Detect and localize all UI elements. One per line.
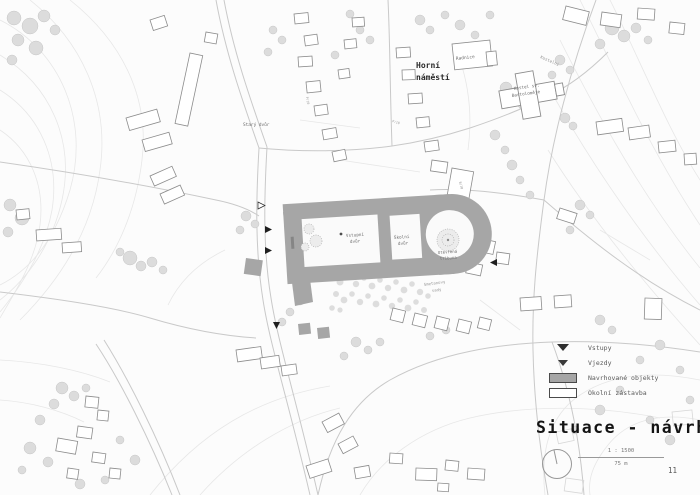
scale-length: 75 m: [578, 458, 664, 467]
existing-swatch-icon: [546, 388, 580, 398]
legend-label: Navrhované objekty: [588, 374, 658, 382]
tribune-tree-trunk: [447, 239, 449, 241]
scale-bar: 1 : 1500 75 m: [578, 448, 664, 467]
legend-item-navrhovane: Navrhované objekty: [546, 370, 696, 385]
square-label: Horní: [416, 61, 440, 70]
park-label: sady: [431, 287, 442, 293]
legend: Vstupy Vjezdy Navrhované objekty Okolní …: [546, 340, 696, 400]
utility-mark: P/10: [392, 119, 401, 125]
label-bullet: [340, 233, 343, 236]
drawing-title: Situace - návrh: [536, 418, 700, 437]
legend-item-vstupy: Vstupy: [546, 340, 696, 355]
north-compass: [543, 450, 572, 479]
legend-label: Vstupy: [588, 344, 611, 352]
old-yard-label: Starý dvůr: [243, 121, 270, 128]
proposed-pavilion: [317, 327, 330, 339]
proposed-building-complex: [244, 192, 494, 339]
proposed-small-building: [244, 258, 263, 276]
legend-label: Vjezdy: [588, 359, 611, 367]
scale-ratio: 1 : 1500: [578, 448, 664, 458]
legend-label: Okolní zástavba: [588, 389, 647, 397]
plan-sheet: Horní náměstí Radnice Kostel sv. Bartolo…: [0, 0, 700, 495]
proposed-swatch-icon: [546, 373, 580, 383]
legend-item-okolni: Okolní zástavba: [546, 385, 696, 400]
driveway-triangle-icon: [546, 360, 580, 366]
proposed-pavilion: [298, 323, 311, 335]
square-label: náměstí: [416, 72, 450, 82]
entrance-triangle-icon: [546, 344, 580, 351]
utility-mark: P/10: [305, 96, 310, 104]
legend-item-vjezdy: Vjezdy: [546, 355, 696, 370]
page-number: 11: [668, 466, 677, 475]
park-label: Smetanovy: [423, 279, 446, 287]
